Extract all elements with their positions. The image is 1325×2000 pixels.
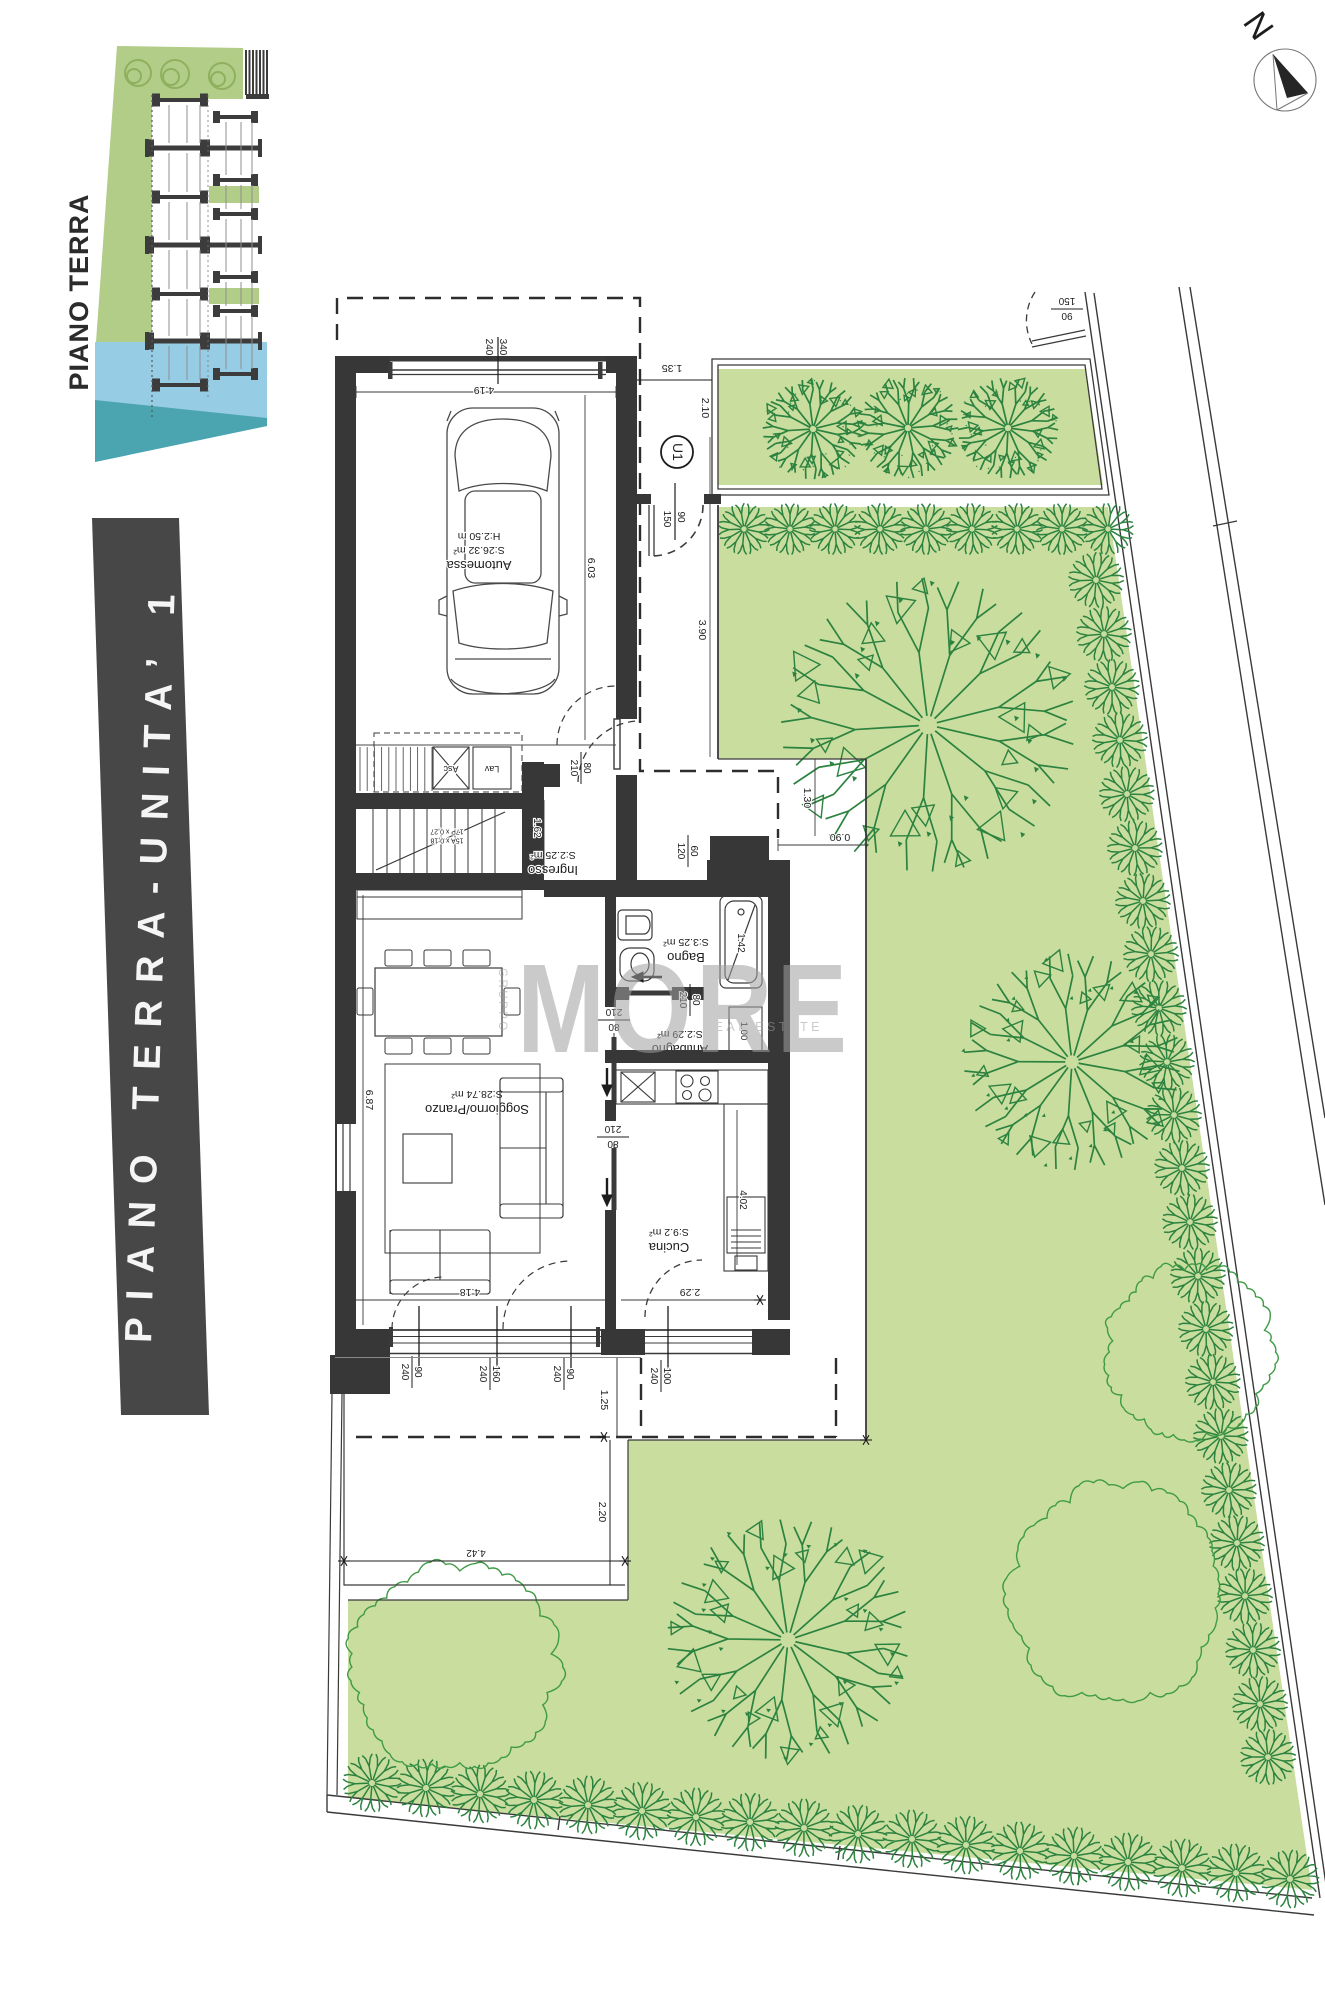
svg-text:90: 90 (564, 1368, 575, 1380)
svg-text:2.29: 2.29 (680, 1286, 701, 1298)
svg-text:90: 90 (412, 1366, 423, 1378)
svg-text:N: N (1235, 5, 1280, 47)
svg-text:90: 90 (675, 511, 686, 523)
svg-text:S:2.25 m²: S:2.25 m² (530, 849, 576, 861)
svg-text:4.42: 4.42 (466, 1547, 486, 1558)
svg-text:120: 120 (675, 843, 686, 860)
svg-text:Asc: Asc (443, 764, 459, 774)
svg-text:150: 150 (1058, 295, 1075, 306)
svg-text:80: 80 (607, 1138, 619, 1149)
svg-text:340: 340 (497, 339, 508, 356)
svg-text:100: 100 (661, 1368, 672, 1385)
svg-text:3.90: 3.90 (696, 620, 708, 641)
svg-text:1.62: 1.62 (531, 818, 542, 838)
svg-text:Soggiorno/Pranzo: Soggiorno/Pranzo (425, 1102, 529, 1117)
svg-text:0.90: 0.90 (830, 831, 851, 843)
svg-text:240: 240 (477, 1366, 488, 1383)
svg-text:240: 240 (399, 1364, 410, 1381)
svg-text:S:26.32 m²: S:26.32 m² (453, 544, 505, 556)
svg-text:210: 210 (604, 1123, 621, 1134)
svg-text:1.35: 1.35 (662, 362, 683, 374)
svg-text:4.18: 4.18 (460, 1286, 481, 1298)
svg-text:90: 90 (1061, 310, 1073, 321)
svg-text:GRUPPO: GRUPPO (496, 968, 508, 1033)
svg-text:Automessa: Automessa (446, 558, 512, 573)
svg-text:17P x 0,27: 17P x 0,27 (430, 828, 463, 835)
svg-text:15A x 0,18: 15A x 0,18 (430, 837, 463, 844)
svg-text:150: 150 (661, 511, 672, 528)
svg-text:2.20: 2.20 (596, 1502, 608, 1523)
svg-text:H:2.50 m: H:2.50 m (457, 530, 500, 542)
svg-text:PIANO TERRA: PIANO TERRA (64, 193, 94, 390)
svg-text:240: 240 (483, 339, 494, 356)
svg-text:6.03: 6.03 (585, 558, 597, 579)
svg-text:REAL ESTATE: REAL ESTATE (702, 1020, 823, 1034)
svg-text:240: 240 (648, 1368, 659, 1385)
svg-text:60: 60 (688, 845, 699, 857)
svg-text:210: 210 (568, 760, 579, 777)
svg-text:Ingresso: Ingresso (528, 863, 578, 878)
svg-text:240: 240 (551, 1366, 562, 1383)
svg-text:1.25: 1.25 (598, 1390, 610, 1411)
svg-text:MORE: MORE (517, 938, 851, 1079)
svg-text:4.02: 4.02 (737, 1190, 748, 1210)
svg-text:S:28.74 m²: S:28.74 m² (451, 1088, 503, 1100)
svg-text:4.19: 4.19 (474, 384, 495, 396)
svg-text:160: 160 (490, 1366, 501, 1383)
svg-text:6.87: 6.87 (363, 1090, 375, 1111)
svg-text:1.30: 1.30 (801, 788, 813, 809)
svg-text:S:9.2 m²: S:9.2 m² (649, 1226, 689, 1238)
svg-text:Lav: Lav (484, 764, 499, 774)
svg-text:Cucina: Cucina (648, 1240, 689, 1255)
svg-text:U1: U1 (670, 443, 686, 461)
svg-text:80: 80 (581, 762, 592, 774)
svg-text:2.10: 2.10 (699, 398, 711, 419)
